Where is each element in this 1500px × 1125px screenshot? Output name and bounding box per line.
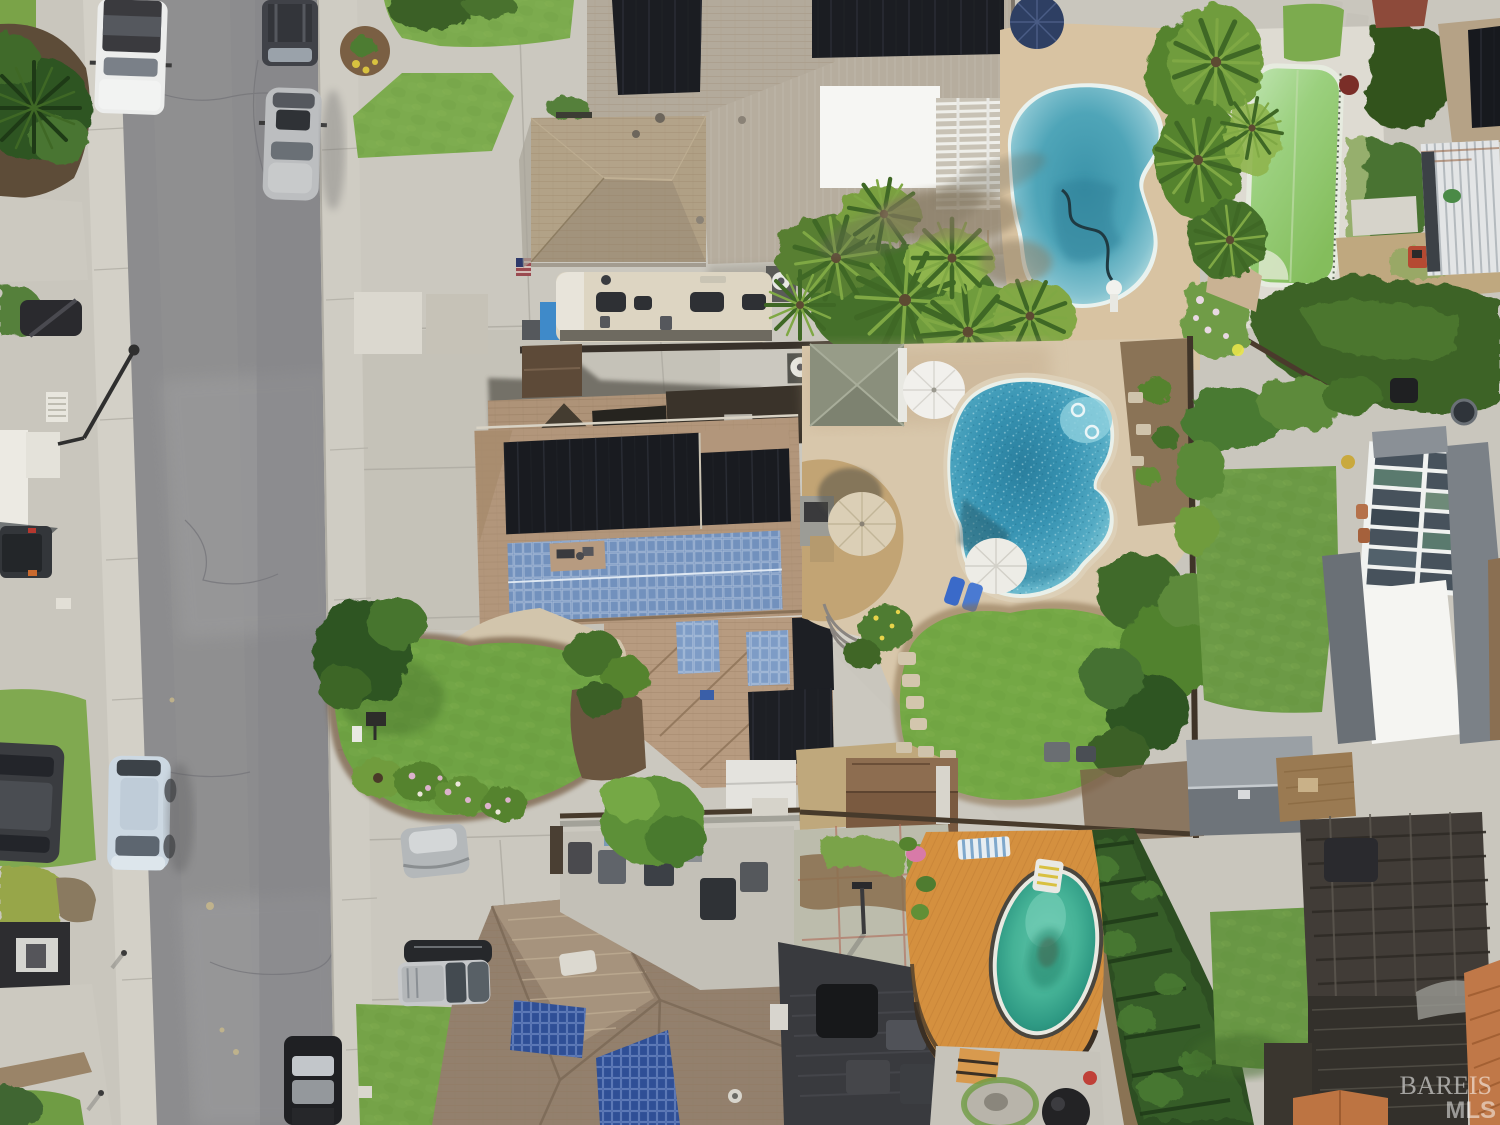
svg-text:BAREIS: BAREIS	[1400, 1071, 1492, 1100]
svg-text:MLS: MLS	[1445, 1097, 1496, 1124]
